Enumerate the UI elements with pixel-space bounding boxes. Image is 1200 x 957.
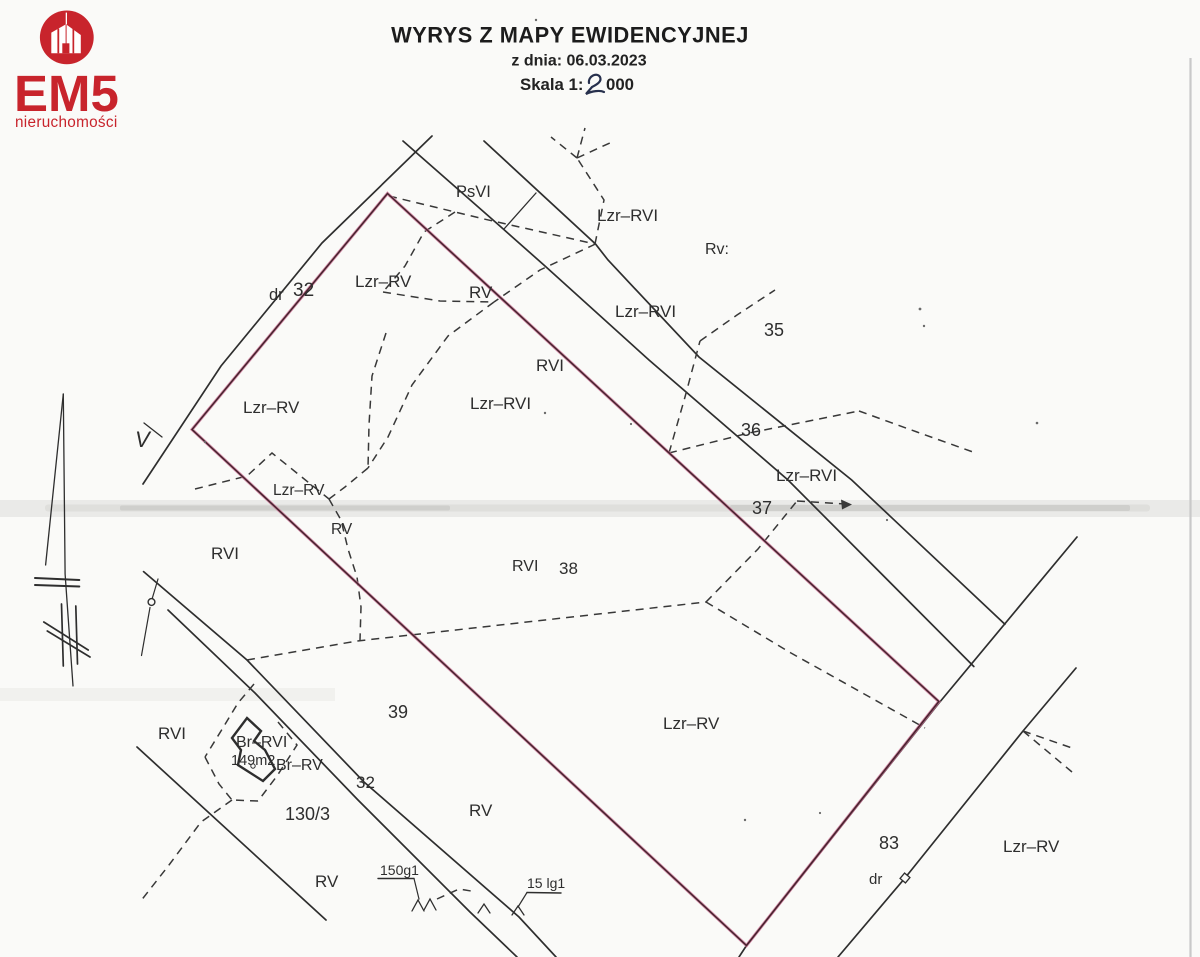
svg-text:WYRYS Z MAPY EWIDENCYJNEJ: WYRYS Z MAPY EWIDENCYJNEJ [391, 22, 749, 47]
svg-text:RV: RV [315, 872, 339, 891]
svg-text:32: 32 [356, 773, 375, 792]
svg-text:Lzr–RVI: Lzr–RVI [470, 394, 531, 413]
svg-text:RV: RV [469, 801, 493, 820]
svg-text:Lzr–RVI: Lzr–RVI [597, 206, 658, 225]
svg-text:z dnia: 06.03.2023: z dnia: 06.03.2023 [511, 53, 646, 70]
svg-text:38: 38 [559, 559, 578, 578]
svg-text:RVI: RVI [536, 356, 564, 375]
svg-text:35: 35 [764, 320, 784, 340]
svg-text:RVI: RVI [158, 724, 186, 743]
svg-text:37: 37 [752, 498, 772, 518]
svg-text:RVI: RVI [512, 558, 538, 575]
svg-text:32: 32 [293, 280, 314, 301]
svg-text:RVI: RVI [211, 544, 239, 563]
svg-text:150g1: 150g1 [380, 862, 419, 878]
svg-text:149m2: 149m2 [231, 753, 275, 769]
svg-text:Lzr–RV: Lzr–RV [663, 714, 720, 733]
svg-text:dr: dr [269, 286, 284, 304]
svg-text:V: V [135, 427, 152, 452]
svg-text:Lzr–RV: Lzr–RV [1003, 837, 1060, 856]
svg-text:83: 83 [879, 833, 899, 853]
svg-text:Lzr–RVI: Lzr–RVI [776, 466, 837, 485]
svg-text:39: 39 [388, 702, 408, 722]
svg-text:dr: dr [869, 871, 882, 888]
svg-text:RV: RV [331, 521, 353, 538]
svg-text:Lzr–RVI: Lzr–RVI [615, 302, 676, 321]
svg-text:nieruchomości: nieruchomości [15, 114, 118, 131]
svg-text:000: 000 [606, 75, 634, 94]
svg-text:Br–RVI: Br–RVI [236, 734, 287, 751]
svg-text:36: 36 [741, 420, 761, 440]
svg-text:Lzr–RV: Lzr–RV [273, 482, 325, 499]
svg-text:130/3: 130/3 [285, 804, 330, 824]
svg-text:Skala 1:: Skala 1: [520, 75, 583, 94]
svg-text:15 lg1: 15 lg1 [527, 875, 565, 891]
svg-text:PsVI: PsVI [456, 183, 491, 201]
svg-text:Rv:: Rv: [705, 241, 729, 258]
svg-text:Lzr–RV: Lzr–RV [355, 272, 412, 291]
svg-text:RV: RV [469, 283, 493, 302]
svg-text:Lzr–RV: Lzr–RV [243, 398, 300, 417]
svg-text:Br–RV: Br–RV [276, 757, 323, 774]
